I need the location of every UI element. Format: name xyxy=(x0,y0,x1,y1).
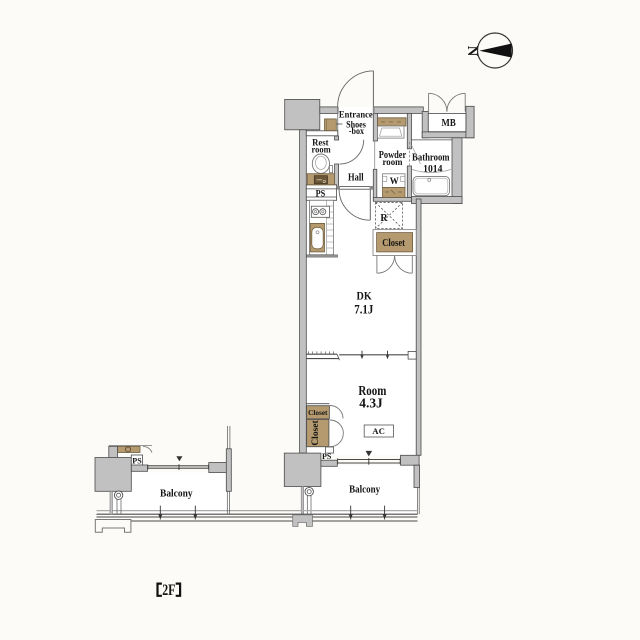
svg-text:PS: PS xyxy=(132,456,142,466)
svg-text:MB: MB xyxy=(442,118,456,129)
svg-text:PS: PS xyxy=(316,188,326,198)
svg-text:Balcony: Balcony xyxy=(349,484,381,495)
svg-text:Closet: Closet xyxy=(382,238,405,249)
svg-text:1014: 1014 xyxy=(423,164,442,175)
svg-text:Balcony: Balcony xyxy=(160,488,193,499)
svg-text:4.3J: 4.3J xyxy=(359,395,383,410)
svg-text:N: N xyxy=(464,46,480,57)
svg-text:7.1J: 7.1J xyxy=(354,302,373,316)
svg-text:PS: PS xyxy=(322,451,332,461)
svg-text:2F: 2F xyxy=(162,582,175,599)
svg-text:DK: DK xyxy=(357,289,373,303)
svg-text:R: R xyxy=(380,213,388,224)
svg-text:-box: -box xyxy=(349,126,365,136)
svg-text:room: room xyxy=(383,157,403,168)
svg-text:W: W xyxy=(390,176,399,186)
svg-text:Hall: Hall xyxy=(348,172,364,184)
svg-text:AC: AC xyxy=(372,426,385,436)
svg-text:Entrance: Entrance xyxy=(339,109,373,119)
svg-text:Closet: Closet xyxy=(311,420,321,446)
svg-text:Closet: Closet xyxy=(308,408,328,417)
